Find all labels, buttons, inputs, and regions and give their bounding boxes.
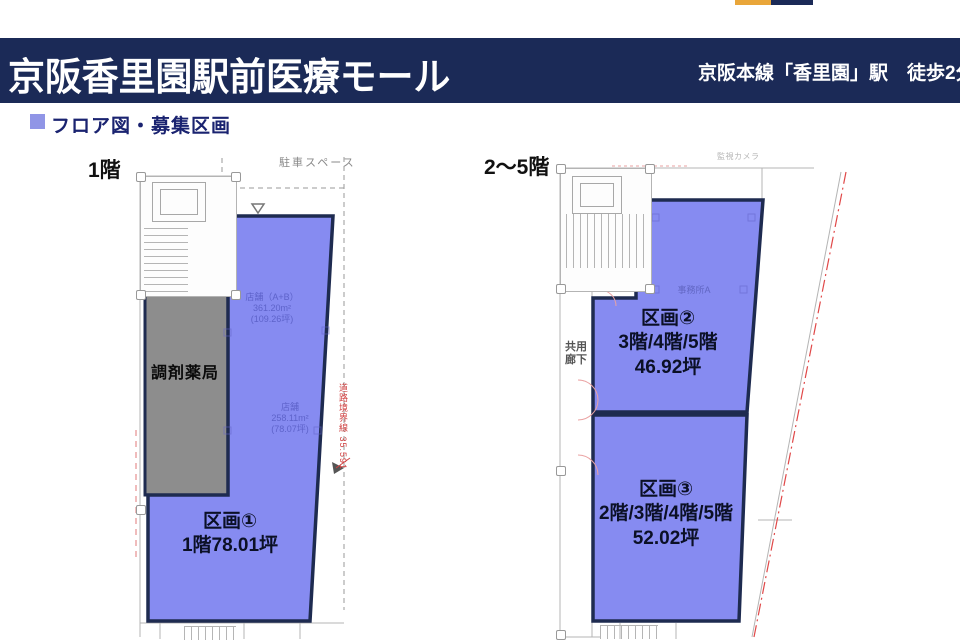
store-sqm-note: 361.20m² bbox=[245, 303, 298, 314]
wall-anchor bbox=[556, 466, 566, 476]
corridor-label-line2: 廊下 bbox=[562, 354, 590, 367]
corridor-label-line1: 共用 bbox=[562, 341, 590, 354]
store-name-note: 店舗 bbox=[271, 402, 309, 413]
wall-anchor bbox=[231, 290, 241, 300]
unit1-area: 1階78.01坪 bbox=[182, 534, 278, 558]
unit1-original-plan-note: 店舗（A+B） 361.20m² (109.26坪) bbox=[245, 292, 298, 325]
stair-treads-2-5f bbox=[566, 214, 644, 268]
road-boundary-note: 道路境界線 35.591 bbox=[337, 383, 350, 470]
wall-anchor bbox=[556, 164, 566, 174]
wall-anchor bbox=[645, 164, 655, 174]
elevator-car-2-5f bbox=[580, 183, 614, 207]
parking-space-label: 駐車スペース bbox=[279, 154, 356, 170]
unit2-label: 区画② 3階/4階/5階 46.92坪 bbox=[618, 307, 717, 380]
store-tsubo-note: (109.26坪) bbox=[245, 314, 298, 325]
floor-label-2-5f: 2〜5階 bbox=[484, 151, 549, 181]
unit3-name: 区画③ bbox=[599, 478, 733, 502]
stair-treads-1f-bottom bbox=[184, 626, 236, 640]
floor-label-1f: 1階 bbox=[88, 154, 121, 184]
unit3-label: 区画③ 2階/3階/4階/5階 52.02坪 bbox=[599, 478, 733, 551]
stair-treads-2-5f-bottom bbox=[600, 625, 658, 639]
store-tsubo-note: (78.07坪) bbox=[271, 424, 309, 435]
wall-anchor bbox=[645, 284, 655, 294]
elevator-car-1f bbox=[160, 189, 198, 215]
store-sqm-note: 258.11m² bbox=[271, 413, 309, 424]
floor-plan-drawing bbox=[0, 0, 960, 640]
unit1-label: 区画① 1階78.01坪 bbox=[182, 510, 278, 559]
unit3-area: 52.02坪 bbox=[599, 527, 733, 551]
unit2-floors: 3階/4階/5階 bbox=[618, 331, 717, 355]
wall-anchor bbox=[556, 630, 566, 640]
unit2-name: 区画② bbox=[618, 307, 717, 331]
office-a-note: 事務所A bbox=[677, 283, 710, 296]
wall-anchor bbox=[136, 172, 146, 182]
unit2-area: 46.92坪 bbox=[618, 356, 717, 380]
shared-corridor-label: 共用 廊下 bbox=[562, 341, 590, 367]
unit1-lower-plan-note: 店舗 258.11m² (78.07坪) bbox=[271, 402, 309, 435]
stair-treads-1f bbox=[144, 228, 188, 292]
store-name-note: 店舗（A+B） bbox=[245, 292, 298, 303]
wall-anchor bbox=[231, 172, 241, 182]
site-corner-note: 監視カメラ bbox=[717, 151, 760, 162]
wall-anchor bbox=[136, 290, 146, 300]
wall-anchor bbox=[556, 284, 566, 294]
wall-anchor bbox=[136, 505, 146, 515]
unit3-floors: 2階/3階/4階/5階 bbox=[599, 502, 733, 526]
unit1-name: 区画① bbox=[182, 510, 278, 534]
pharmacy-label: 調剤薬局 bbox=[151, 359, 219, 383]
